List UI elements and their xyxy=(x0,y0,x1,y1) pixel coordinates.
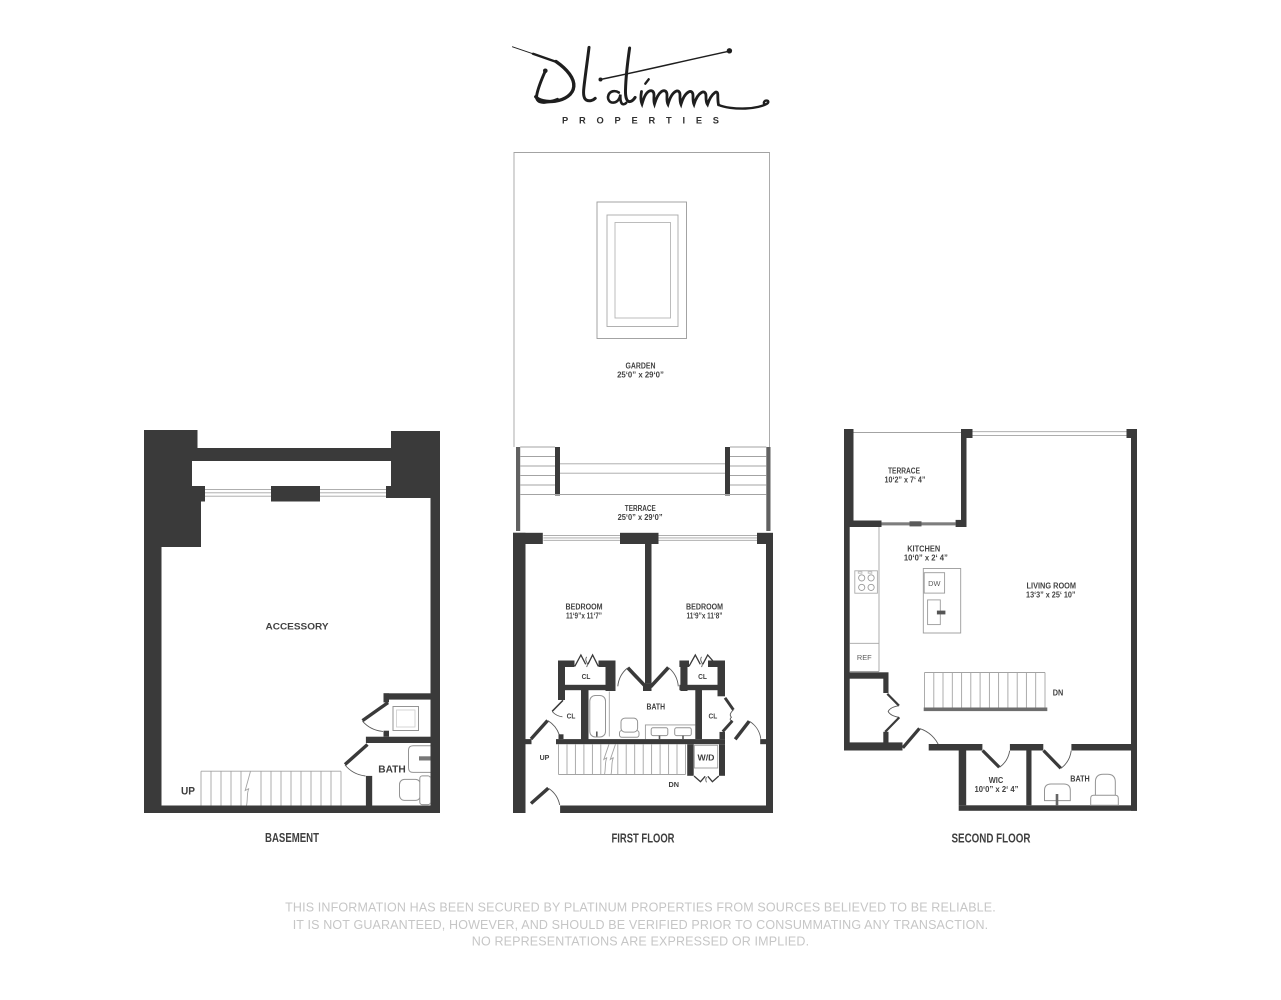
svg-text:IT IS NOT GUARANTEED, HOWEVER,: IT IS NOT GUARANTEED, HOWEVER, AND SHOUL… xyxy=(293,918,989,932)
svg-text:CL: CL xyxy=(709,712,718,721)
svg-text:10‘2” x 7‘ 4”: 10‘2” x 7‘ 4” xyxy=(885,476,926,485)
svg-text:REF: REF xyxy=(857,653,872,662)
svg-text:10‘0” x 2‘ 4”: 10‘0” x 2‘ 4” xyxy=(975,785,1019,794)
svg-text:CL: CL xyxy=(567,712,576,721)
svg-text:11‘9”x 11‘8”: 11‘9”x 11‘8” xyxy=(687,611,723,620)
svg-text:BATH: BATH xyxy=(378,764,406,775)
svg-text:SECOND FLOOR: SECOND FLOOR xyxy=(952,832,1031,846)
svg-text:25‘0” x 29‘0”: 25‘0” x 29‘0” xyxy=(618,513,663,522)
svg-text:CL: CL xyxy=(698,672,707,681)
svg-text:NO REPRESENTATIONS ARE EXPRESS: NO REPRESENTATIONS ARE EXPRESSED OR IMPL… xyxy=(472,935,809,949)
svg-text:11‘9”x 11‘7”: 11‘9”x 11‘7” xyxy=(566,611,602,620)
svg-text:TERRACE: TERRACE xyxy=(888,467,920,476)
svg-text:BEDROOM: BEDROOM xyxy=(566,602,603,611)
svg-text:DN: DN xyxy=(668,780,679,789)
svg-text:BASEMENT: BASEMENT xyxy=(265,831,319,845)
svg-text:DW: DW xyxy=(928,579,940,588)
svg-text:THIS INFORMATION HAS BEEN SECU: THIS INFORMATION HAS BEEN SECURED BY PLA… xyxy=(285,901,996,915)
svg-text:25‘0” x 29‘0”: 25‘0” x 29‘0” xyxy=(617,371,664,380)
svg-text:CL: CL xyxy=(582,672,591,681)
svg-text:WIC: WIC xyxy=(989,776,1004,785)
svg-text:BEDROOM: BEDROOM xyxy=(686,602,723,611)
svg-text:DN: DN xyxy=(1053,689,1064,698)
svg-text:BATH: BATH xyxy=(1070,775,1090,784)
svg-text:LIVING ROOM: LIVING ROOM xyxy=(1027,582,1077,591)
svg-text:FIRST FLOOR: FIRST FLOOR xyxy=(612,832,675,846)
svg-text:ACCESSORY: ACCESSORY xyxy=(266,622,330,633)
svg-text:PROPERTIES: PROPERTIES xyxy=(562,116,719,126)
svg-text:UP: UP xyxy=(181,785,195,797)
svg-text:TERRACE: TERRACE xyxy=(625,504,656,513)
svg-text:W/D: W/D xyxy=(698,753,715,763)
svg-text:BATH: BATH xyxy=(647,703,666,712)
svg-text:UP: UP xyxy=(540,753,550,762)
svg-text:10‘0” x 2‘ 4”: 10‘0” x 2‘ 4” xyxy=(904,554,948,563)
svg-text:KITCHEN: KITCHEN xyxy=(907,545,940,554)
svg-text:GARDEN: GARDEN xyxy=(626,362,656,371)
svg-text:13‘3” x 25‘ 10”: 13‘3” x 25‘ 10” xyxy=(1026,591,1076,600)
